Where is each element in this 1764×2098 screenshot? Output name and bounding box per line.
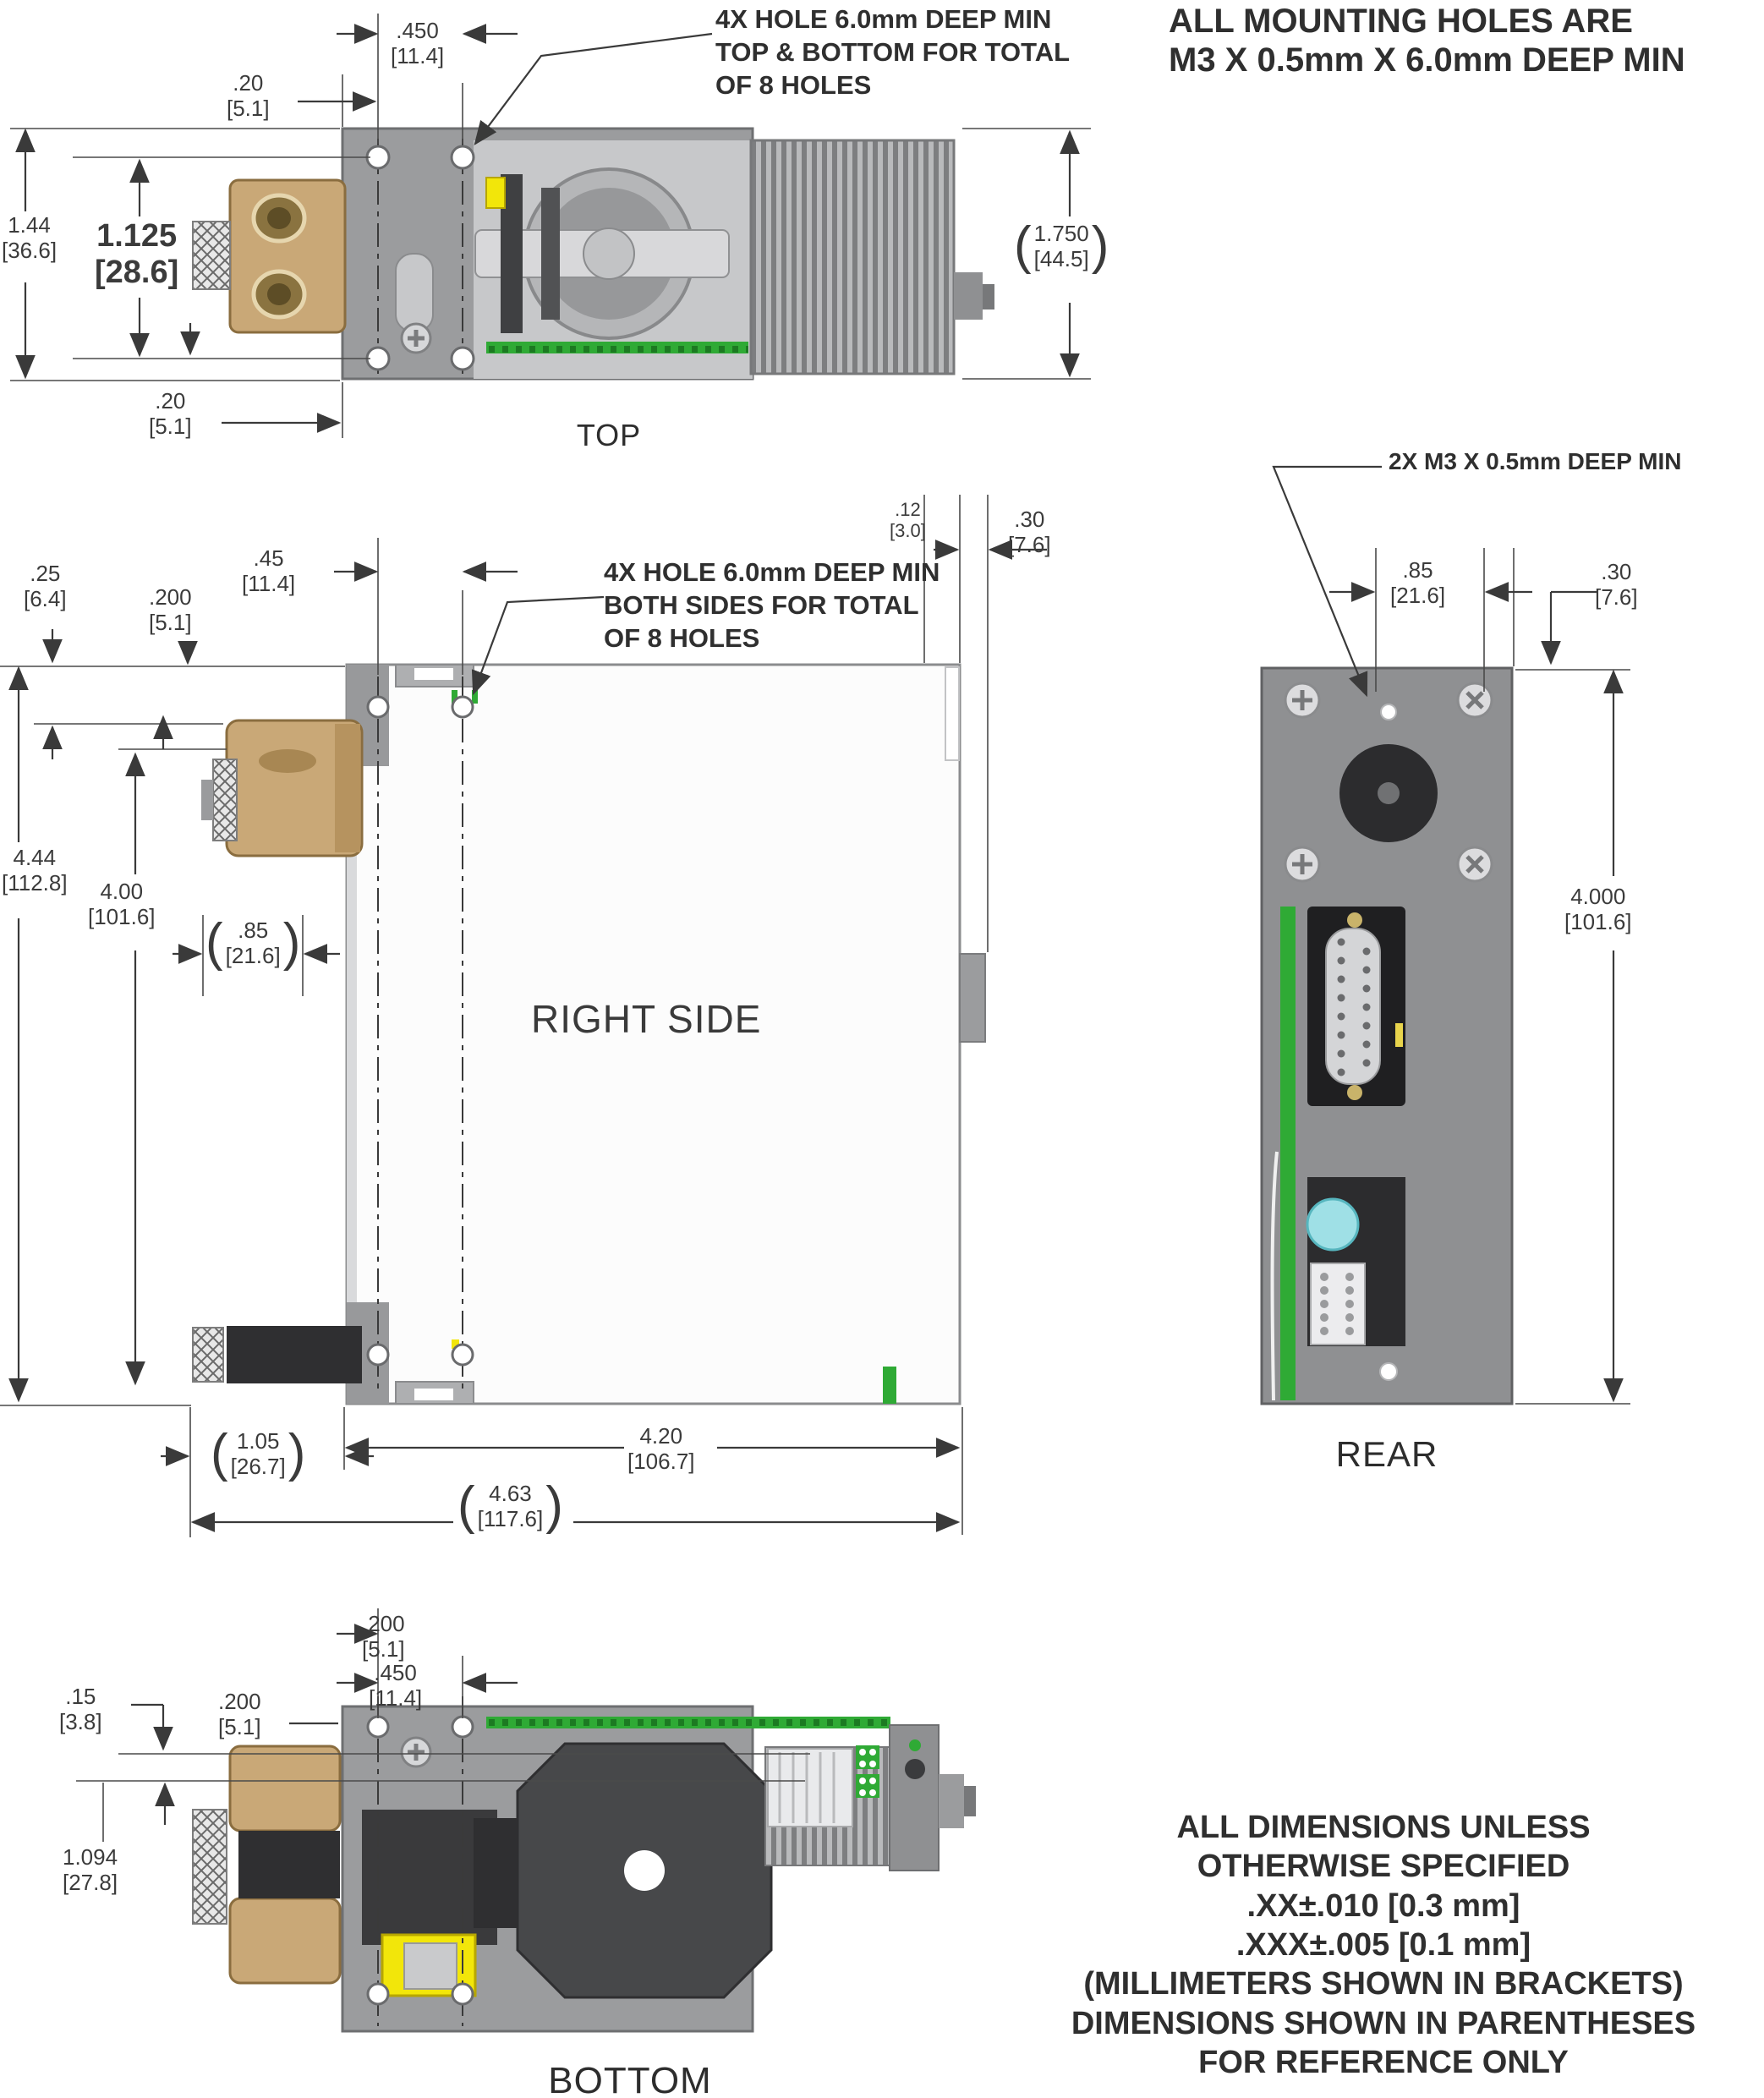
paren-close: ) (286, 1432, 309, 1476)
dim-mm: [28.6] (95, 255, 178, 291)
dim-inch: .20 (155, 389, 185, 414)
general-note-line7: FOR REFERENCE ONLY (1003, 2043, 1764, 2082)
dim-inch: 4.00 (100, 879, 143, 905)
paren-open: ( (208, 1432, 231, 1476)
side-dim-body-height: 4.00[101.6] (88, 879, 156, 929)
dim-inch: 1.094 (63, 1845, 118, 1871)
dim-inch: 4.44 (13, 846, 56, 871)
rear-dim-edge-offset: .30[7.6] (1595, 560, 1638, 610)
dim-mm: [11.4] (242, 572, 295, 597)
dim-inch: 4.20 (639, 1424, 682, 1449)
general-note-line1: ALL DIMENSIONS UNLESS (1003, 1808, 1764, 1847)
rear-view-label: REAR (1307, 1434, 1467, 1475)
dim-inch: .85 (238, 918, 268, 944)
general-tolerance-note: ALL DIMENSIONS UNLESS OTHERWISE SPECIFIE… (1003, 1808, 1764, 2083)
top-holes-note-line2: TOP & BOTTOM FOR TOTAL (715, 36, 1070, 69)
side-dim-ref-85: ( .85[21.6] ) (203, 918, 303, 968)
paren-open: ( (203, 921, 226, 966)
dim-mm: [112.8] (2, 871, 68, 896)
mounting-note: ALL MOUNTING HOLES ARE M3 X 0.5mm X 6.0m… (1169, 2, 1764, 79)
dim-inch: .200 (218, 1690, 261, 1715)
dim-mm: [26.7] (231, 1454, 286, 1480)
side-dim-hole-spacing-x: .45[11.4] (242, 546, 295, 596)
rear-dim-height: 4.000[101.6] (1564, 885, 1632, 934)
dim-inch: .85 (1402, 558, 1433, 583)
bottom-dim-hole-offset: .200[5.1] (362, 1612, 405, 1662)
dim-inch: .450 (396, 19, 439, 44)
top-holes-note-line3: OF 8 HOLES (715, 69, 1070, 102)
top-dim-hole-spacing-y: 1.125[28.6] (95, 218, 178, 292)
dim-inch: 1.750 (1034, 222, 1089, 247)
side-dim-overall-height: 4.44[112.8] (2, 846, 68, 896)
cross-screw-icon (1458, 847, 1492, 881)
side-holes-note: 4X HOLE 6.0mm DEEP MIN BOTH SIDES FOR TO… (604, 556, 940, 655)
general-note-line2: OTHERWISE SPECIFIED (1003, 1847, 1764, 1886)
dim-mm: [101.6] (1564, 910, 1632, 935)
bottom-view-label: BOTTOM (524, 2060, 736, 2098)
dim-inch: .20 (233, 71, 263, 96)
dim-inch: 1.44 (8, 213, 51, 238)
side-holes-note-line3: OF 8 HOLES (604, 622, 940, 655)
mounting-note-line2: M3 X 0.5mm X 6.0mm DEEP MIN (1169, 41, 1764, 79)
dim-mm: [5.1] (149, 414, 192, 440)
rear-holes-note-line1: 2X M3 X 0.5mm DEEP MIN (1389, 446, 1761, 476)
dim-inch: .30 (1601, 560, 1631, 585)
side-dim-edge-offset: .200[5.1] (149, 585, 192, 635)
top-holes-note-line1: 4X HOLE 6.0mm DEEP MIN (715, 3, 1070, 36)
dim-mm: [27.8] (63, 1871, 118, 1896)
side-dim-connector-depth: .30[7.6] (1008, 507, 1051, 557)
top-view-drawing (193, 129, 994, 379)
dim-inch: 1.05 (237, 1429, 280, 1454)
paren-close: ) (281, 921, 304, 966)
side-holes-note-line1: 4X HOLE 6.0mm DEEP MIN (604, 556, 940, 589)
dim-inch: .450 (374, 1661, 417, 1686)
top-holes-note: 4X HOLE 6.0mm DEEP MIN TOP & BOTTOM FOR … (715, 3, 1070, 101)
general-note-line5: (MILLIMETERS SHOWN IN BRACKETS) (1003, 1964, 1764, 2003)
dim-mm: [21.6] (1390, 583, 1445, 609)
paren-open: ( (455, 1484, 478, 1529)
dim-mm: [36.6] (2, 238, 57, 264)
dim-mm: [7.6] (1008, 533, 1051, 558)
dim-inch: .12 (895, 499, 921, 520)
dim-inch: 4.63 (489, 1482, 532, 1507)
dim-mm: [44.5] (1034, 247, 1089, 272)
general-note-line6: DIMENSIONS SHOWN IN PARENTHESES (1003, 2004, 1764, 2043)
general-note-line4: .XXX±.005 [0.1 mm] (1003, 1925, 1764, 1964)
phillips-screw-icon (402, 1738, 430, 1767)
drawing-canvas (0, 0, 1764, 2098)
bottom-dim-step-offset: .200[5.1] (218, 1690, 261, 1739)
dim-inch: 4.000 (1570, 885, 1625, 910)
phillips-screw-icon (1285, 683, 1319, 717)
side-view-label: RIGHT SIDE (531, 996, 761, 1042)
top-dim-overall-width: 1.44[36.6] (2, 213, 57, 263)
dim-mm: [5.1] (149, 611, 192, 636)
dim-inch: .25 (30, 561, 60, 587)
dim-mm: [101.6] (88, 905, 156, 930)
top-dim-edge-offset: .20[5.1] (149, 389, 192, 439)
dim-mm: [6.4] (24, 587, 67, 612)
side-dim-notch: .12[3.0] (890, 499, 926, 541)
dim-inch: .200 (362, 1612, 405, 1637)
dim-mm: [106.7] (627, 1449, 695, 1475)
paren-close: ) (543, 1484, 566, 1529)
dim-mm: [117.6] (478, 1507, 544, 1532)
bottom-dim-edge-offset: .15[3.8] (59, 1684, 102, 1734)
dim-mm: [5.1] (227, 96, 270, 122)
bottom-dim-port-position: 1.094[27.8] (63, 1845, 118, 1895)
dim-inch: .200 (149, 585, 192, 611)
dim-mm: [21.6] (226, 944, 281, 969)
dim-mm: [3.8] (59, 1710, 102, 1735)
dim-mm: [11.4] (369, 1686, 422, 1712)
dim-inch: .15 (65, 1684, 96, 1710)
bottom-dim-hole-spacing: .450[11.4] (369, 1661, 422, 1711)
dim-inch: 1.125 (96, 218, 177, 255)
top-dim-hole-spacing-x: .450[11.4] (391, 19, 444, 68)
side-holes-note-line2: BOTH SIDES FOR TOTAL (604, 589, 940, 622)
phillips-screw-icon (1285, 847, 1319, 881)
dim-inch: .30 (1014, 507, 1044, 533)
paren-open: ( (1011, 224, 1034, 269)
rear-holes-note: 2X M3 X 0.5mm DEEP MIN (1389, 446, 1761, 476)
side-dim-ref-105: ( 1.05[26.7] ) (208, 1429, 308, 1479)
paren-close: ) (1089, 224, 1112, 269)
top-view-label: TOP (554, 418, 664, 453)
dim-mm: [5.1] (218, 1715, 261, 1740)
dim-mm: [5.1] (362, 1637, 405, 1663)
cross-screw-icon (1458, 683, 1492, 717)
engineering-drawing-sheet: TOP RIGHT SIDE REAR BOTTOM ALL MOUNTING … (0, 0, 1764, 2098)
side-dim-top-offset: .25[6.4] (24, 561, 67, 611)
bottom-view-drawing (193, 1696, 976, 2031)
top-dim-overall-height-ref: ( 1.750[44.5] ) (1011, 222, 1111, 271)
top-dim-hole-offset: .20[5.1] (227, 71, 270, 121)
dim-mm: [7.6] (1595, 585, 1638, 611)
dim-mm: [3.0] (890, 520, 926, 541)
rear-dim-hole-position: .85[21.6] (1390, 558, 1445, 608)
dim-inch: .45 (253, 546, 283, 572)
rear-view-drawing (1262, 668, 1512, 1404)
mounting-note-line1: ALL MOUNTING HOLES ARE (1169, 2, 1764, 41)
phillips-screw-icon (402, 324, 430, 353)
general-note-line3: .XX±.010 [0.3 mm] (1003, 1887, 1764, 1925)
side-dim-body-length: 4.20[106.7] (627, 1424, 695, 1474)
dim-mm: [11.4] (391, 44, 444, 69)
side-dim-overall-length-ref: ( 4.63[117.6] ) (455, 1482, 566, 1531)
